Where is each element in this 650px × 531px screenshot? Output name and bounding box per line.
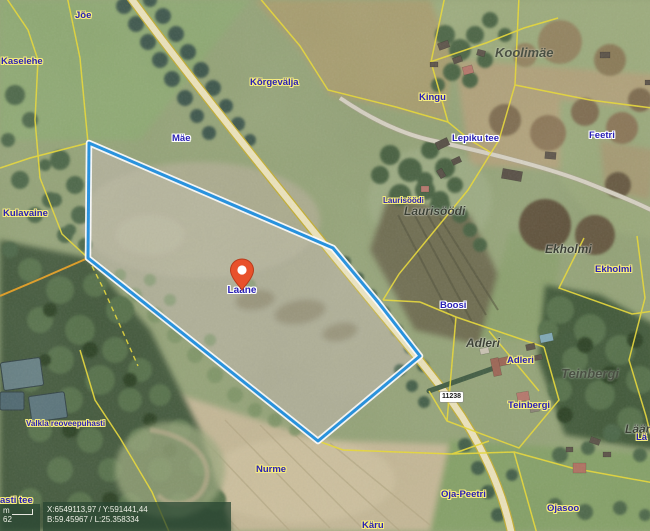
map-label-feetri: Feetri	[589, 131, 615, 141]
map-label-ekholmi: Ekholmi	[595, 265, 632, 275]
map-label-teinbergi: Teinbergi	[508, 401, 550, 411]
map-label-valkla: Valkla reoveepuhasti	[26, 420, 105, 428]
map-label-adleri-it: Adleri	[466, 337, 500, 349]
scale-value: 62	[3, 515, 37, 524]
coords-bl: B:59.45967 / L:25.358334	[47, 515, 227, 525]
map-label-boosi: Boosi	[440, 301, 466, 311]
texture-noise	[0, 0, 650, 531]
map-label-lepiku-tee: Lepiku tee	[452, 134, 499, 144]
map-label-kaselehe: Kaselehe	[1, 57, 43, 67]
map-label-koolimae: Koolimäe	[495, 46, 554, 59]
scale-bar	[12, 509, 33, 515]
map-label-mae: Mäe	[172, 134, 190, 144]
road-number-badge: 11238	[440, 392, 463, 402]
map-label-karu: Käru	[362, 521, 384, 531]
map-label-nurme: Nurme	[256, 465, 286, 475]
pin-hole	[237, 265, 246, 274]
map-label-kingu: Kingu	[419, 93, 446, 103]
map-label-kulavaine: Kulavaine	[3, 209, 48, 219]
map-label-ekholmi-it: Ekholmi	[545, 243, 592, 255]
map-viewport[interactable]: Jõe Kaselehe Kõrgevälja Kingu Koolimäe F…	[0, 0, 650, 531]
location-marker-pin[interactable]	[228, 258, 256, 297]
map-label-joe: Jõe	[75, 11, 91, 21]
map-label-ojasoo: Ojasoo	[547, 504, 579, 514]
map-label-adleri: Adleri	[507, 356, 534, 366]
scale-unit: m	[3, 506, 10, 515]
map-label-teinbergi-it: Teinbergi	[561, 367, 619, 380]
scale-indicator: m 62	[0, 504, 40, 531]
map-canvas[interactable]	[0, 0, 650, 531]
coordinate-readout: X:6549113,97 / Y:591441,44 B:59.45967 / …	[43, 502, 231, 531]
coords-xy: X:6549113,97 / Y:591441,44	[47, 505, 227, 515]
map-label-korgevalja: Kõrgevälja	[250, 78, 299, 88]
map-label-la: Lä	[636, 433, 647, 443]
map-label-oja-peetri: Oja-Peetri	[441, 490, 486, 500]
map-label-laurisoodi: Laurisöödi	[404, 205, 465, 217]
